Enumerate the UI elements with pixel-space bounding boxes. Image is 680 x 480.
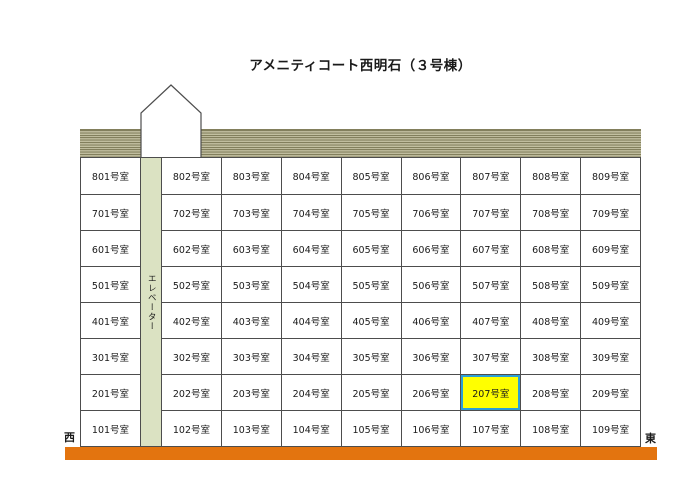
ground-bar [65, 447, 657, 460]
room-cell-703: 703号室 [221, 194, 281, 230]
east-label: 東 [645, 430, 656, 446]
room-cell-104: 104号室 [281, 410, 341, 446]
room-cell-205: 205号室 [341, 374, 401, 410]
room-cell-509: 509号室 [580, 266, 640, 302]
room-cell-502: 502号室 [161, 266, 221, 302]
floor-map: { "title": "アメニティコート西明石（３号棟）", "building… [0, 0, 680, 480]
room-cell-207[interactable]: 207号室 [460, 374, 520, 410]
room-cell-705: 705号室 [341, 194, 401, 230]
room-cell-503: 503号室 [221, 266, 281, 302]
room-cell-405: 405号室 [341, 302, 401, 338]
room-cell-301: 301号室 [81, 338, 140, 374]
room-cell-505: 505号室 [341, 266, 401, 302]
room-cell-403: 403号室 [221, 302, 281, 338]
room-cell-605: 605号室 [341, 230, 401, 266]
room-cell-401: 401号室 [81, 302, 140, 338]
room-cell-306: 306号室 [401, 338, 461, 374]
roof-tower [140, 84, 202, 157]
room-cell-206: 206号室 [401, 374, 461, 410]
room-cell-307: 307号室 [460, 338, 520, 374]
room-cell-308: 308号室 [520, 338, 580, 374]
room-cell-102: 102号室 [161, 410, 221, 446]
room-cell-602: 602号室 [161, 230, 221, 266]
room-cell-507: 507号室 [460, 266, 520, 302]
room-cell-105: 105号室 [341, 410, 401, 446]
room-cell-704: 704号室 [281, 194, 341, 230]
room-cell-107: 107号室 [460, 410, 520, 446]
room-cell-501: 501号室 [81, 266, 140, 302]
room-cell-708: 708号室 [520, 194, 580, 230]
west-label: 西 [64, 429, 75, 445]
room-cell-606: 606号室 [401, 230, 461, 266]
room-cell-103: 103号室 [221, 410, 281, 446]
room-cell-302: 302号室 [161, 338, 221, 374]
room-cell-407: 407号室 [460, 302, 520, 338]
room-cell-809: 809号室 [580, 158, 640, 194]
room-cell-807: 807号室 [460, 158, 520, 194]
room-cell-108: 108号室 [520, 410, 580, 446]
room-cell-603: 603号室 [221, 230, 281, 266]
room-cell-701: 701号室 [81, 194, 140, 230]
room-cell-203: 203号室 [221, 374, 281, 410]
room-cell-508: 508号室 [520, 266, 580, 302]
room-cell-109: 109号室 [580, 410, 640, 446]
room-cell-303: 303号室 [221, 338, 281, 374]
room-cell-806: 806号室 [401, 158, 461, 194]
room-cell-803: 803号室 [221, 158, 281, 194]
room-cell-304: 304号室 [281, 338, 341, 374]
room-cell-706: 706号室 [401, 194, 461, 230]
room-cell-801: 801号室 [81, 158, 140, 194]
room-cell-607: 607号室 [460, 230, 520, 266]
room-cell-209: 209号室 [580, 374, 640, 410]
room-cell-204: 204号室 [281, 374, 341, 410]
room-cell-608: 608号室 [520, 230, 580, 266]
room-cell-404: 404号室 [281, 302, 341, 338]
room-cell-804: 804号室 [281, 158, 341, 194]
tower-shape [141, 85, 201, 157]
room-cell-409: 409号室 [580, 302, 640, 338]
room-cell-406: 406号室 [401, 302, 461, 338]
room-cell-604: 604号室 [281, 230, 341, 266]
room-cell-202: 202号室 [161, 374, 221, 410]
room-cell-402: 402号室 [161, 302, 221, 338]
room-cell-309: 309号室 [580, 338, 640, 374]
elevator-shaft: エレベーター [140, 158, 161, 446]
room-cell-709: 709号室 [580, 194, 640, 230]
room-cell-609: 609号室 [580, 230, 640, 266]
room-cell-805: 805号室 [341, 158, 401, 194]
room-cell-808: 808号室 [520, 158, 580, 194]
building-title: アメニティコート西明石（３号棟） [80, 54, 641, 74]
room-cell-101: 101号室 [81, 410, 140, 446]
room-cell-504: 504号室 [281, 266, 341, 302]
floor-grid: エレベーター801号室802号室803号室804号室805号室806号室807号… [80, 157, 641, 447]
room-cell-106: 106号室 [401, 410, 461, 446]
room-cell-208: 208号室 [520, 374, 580, 410]
room-cell-702: 702号室 [161, 194, 221, 230]
elevator-label: エレベーター [147, 274, 156, 331]
room-cell-802: 802号室 [161, 158, 221, 194]
room-cell-305: 305号室 [341, 338, 401, 374]
room-cell-408: 408号室 [520, 302, 580, 338]
room-cell-201: 201号室 [81, 374, 140, 410]
room-cell-601: 601号室 [81, 230, 140, 266]
room-cell-506: 506号室 [401, 266, 461, 302]
room-cell-707: 707号室 [460, 194, 520, 230]
